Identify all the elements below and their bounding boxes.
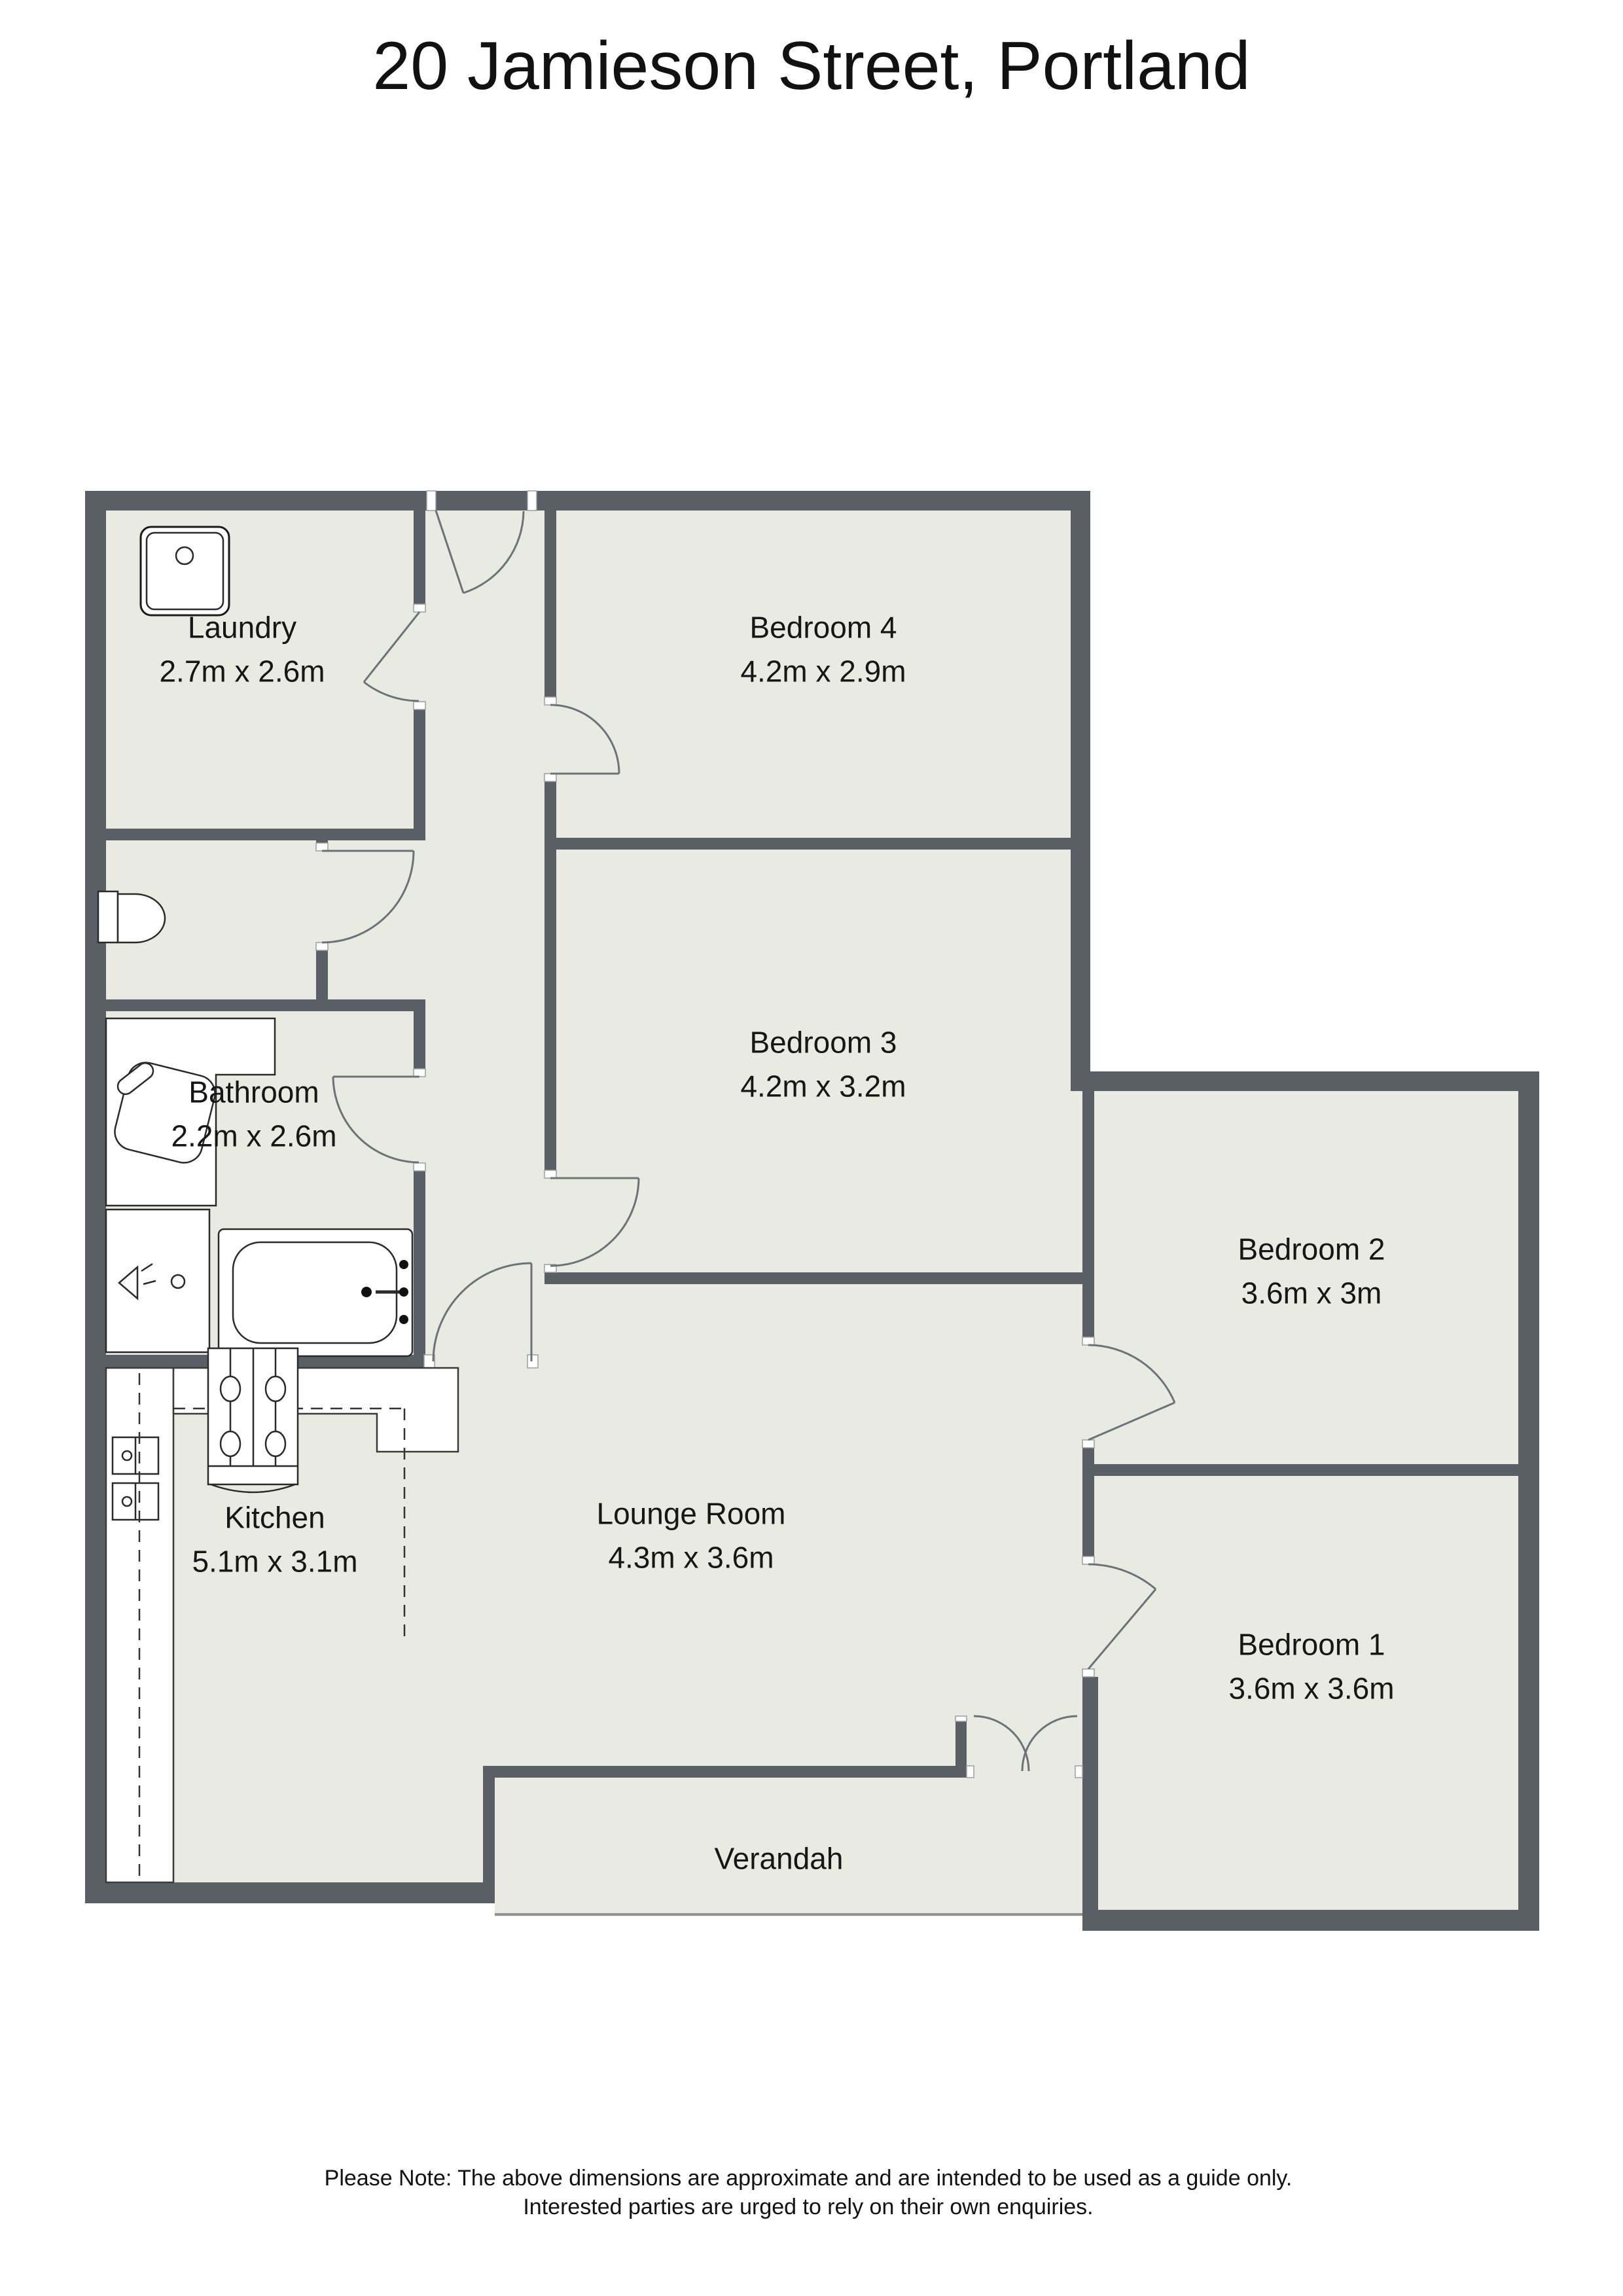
room-dims: 4.3m x 3.6m <box>597 1535 786 1579</box>
stove-icon <box>208 1348 298 1492</box>
floorplan-page: { "title": "20 Jamieson Street, Portland… <box>0 0 1623 2296</box>
footer-note-line1: Please Note: The above dimensions are ap… <box>23 2164 1594 2193</box>
room-label-bedroom2: Bedroom 2 3.6m x 3m <box>1238 1227 1385 1314</box>
bathtub-icon <box>219 1229 412 1356</box>
footer-note-line2: Interested parties are urged to rely on … <box>23 2193 1594 2222</box>
room-name: Lounge Room <box>597 1492 786 1535</box>
room-label-bedroom4: Bedroom 4 4.2m x 2.9m <box>740 605 906 692</box>
shower-icon <box>106 1210 209 1352</box>
room-label-bedroom3: Bedroom 3 4.2m x 3.2m <box>740 1020 906 1107</box>
room-dims: 4.2m x 2.9m <box>740 649 906 693</box>
room-dims: 5.1m x 3.1m <box>192 1539 357 1583</box>
room-label-verandah: Verandah <box>715 1837 844 1881</box>
room-dims: 3.6m x 3m <box>1238 1271 1385 1315</box>
room-label-bathroom: Bathroom 2.2m x 2.6m <box>171 1070 336 1157</box>
room-dims: 4.2m x 3.2m <box>740 1064 906 1108</box>
laundry-sink-icon <box>141 527 229 615</box>
room-name: Bedroom 3 <box>740 1020 906 1064</box>
room-label-bedroom1: Bedroom 1 3.6m x 3.6m <box>1228 1623 1394 1710</box>
room-label-laundry: Laundry 2.7m x 2.6m <box>159 605 325 692</box>
room-name: Bedroom 2 <box>1238 1227 1385 1271</box>
room-name: Bedroom 4 <box>740 605 906 649</box>
room-dims: 2.7m x 2.6m <box>159 649 325 693</box>
room-dims: 3.6m x 3.6m <box>1228 1666 1394 1710</box>
room-name: Bedroom 1 <box>1228 1623 1394 1666</box>
room-dims: 2.2m x 2.6m <box>171 1114 336 1158</box>
room-label-lounge: Lounge Room 4.3m x 3.6m <box>597 1492 786 1579</box>
room-label-kitchen: Kitchen 5.1m x 3.1m <box>192 1496 357 1583</box>
room-name: Laundry <box>159 605 325 649</box>
room-name: Bathroom <box>171 1070 336 1114</box>
room-name: Verandah <box>715 1837 844 1881</box>
room-name: Kitchen <box>192 1496 357 1539</box>
